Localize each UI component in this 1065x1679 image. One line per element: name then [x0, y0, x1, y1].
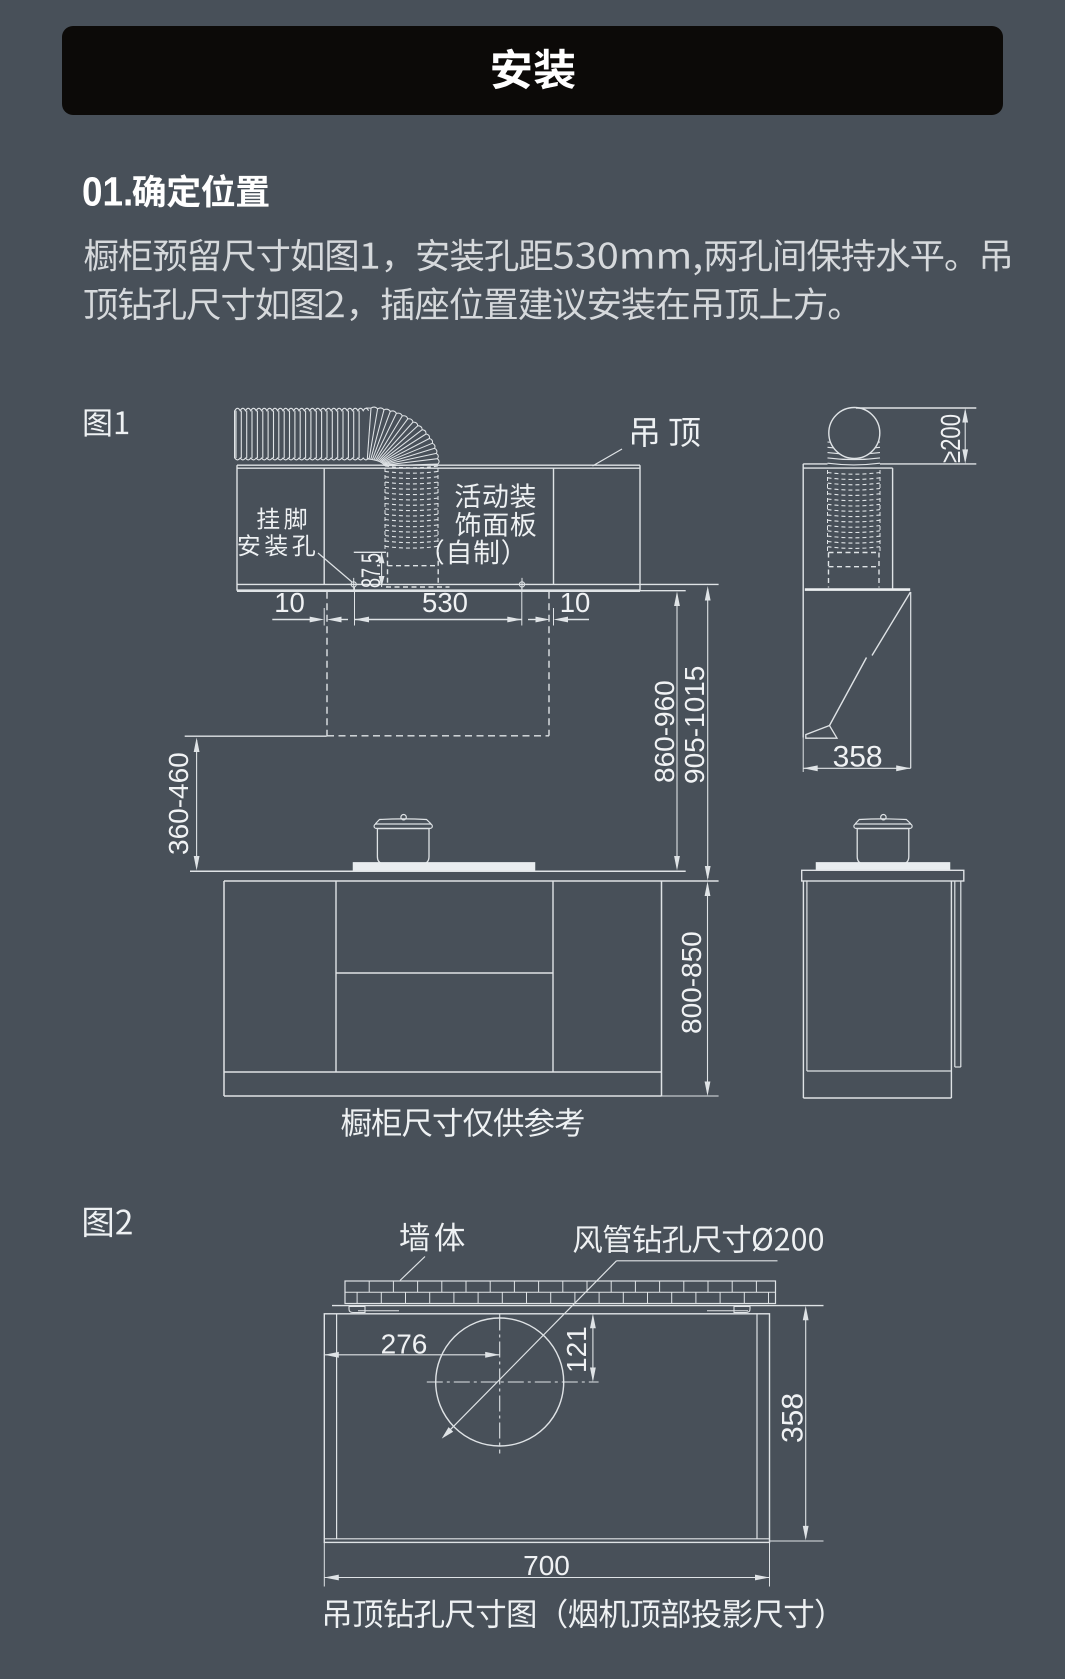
svg-text:121: 121	[561, 1326, 592, 1373]
svg-text:358: 358	[833, 741, 883, 774]
svg-text:360-460: 360-460	[163, 752, 194, 855]
svg-text:700: 700	[523, 1550, 570, 1581]
svg-text:87.5: 87.5	[356, 553, 386, 588]
svg-text:≥200: ≥200	[935, 414, 966, 463]
svg-text:10: 10	[560, 587, 591, 618]
svg-text:800-850: 800-850	[676, 931, 707, 1034]
svg-text:358: 358	[777, 1393, 810, 1443]
svg-text:01.: 01.	[82, 170, 133, 215]
svg-text:905-1015: 905-1015	[679, 666, 710, 784]
svg-text:276: 276	[381, 1328, 428, 1359]
svg-text:860-960: 860-960	[649, 680, 680, 783]
svg-text:530: 530	[422, 587, 468, 618]
svg-text:10: 10	[274, 587, 305, 618]
